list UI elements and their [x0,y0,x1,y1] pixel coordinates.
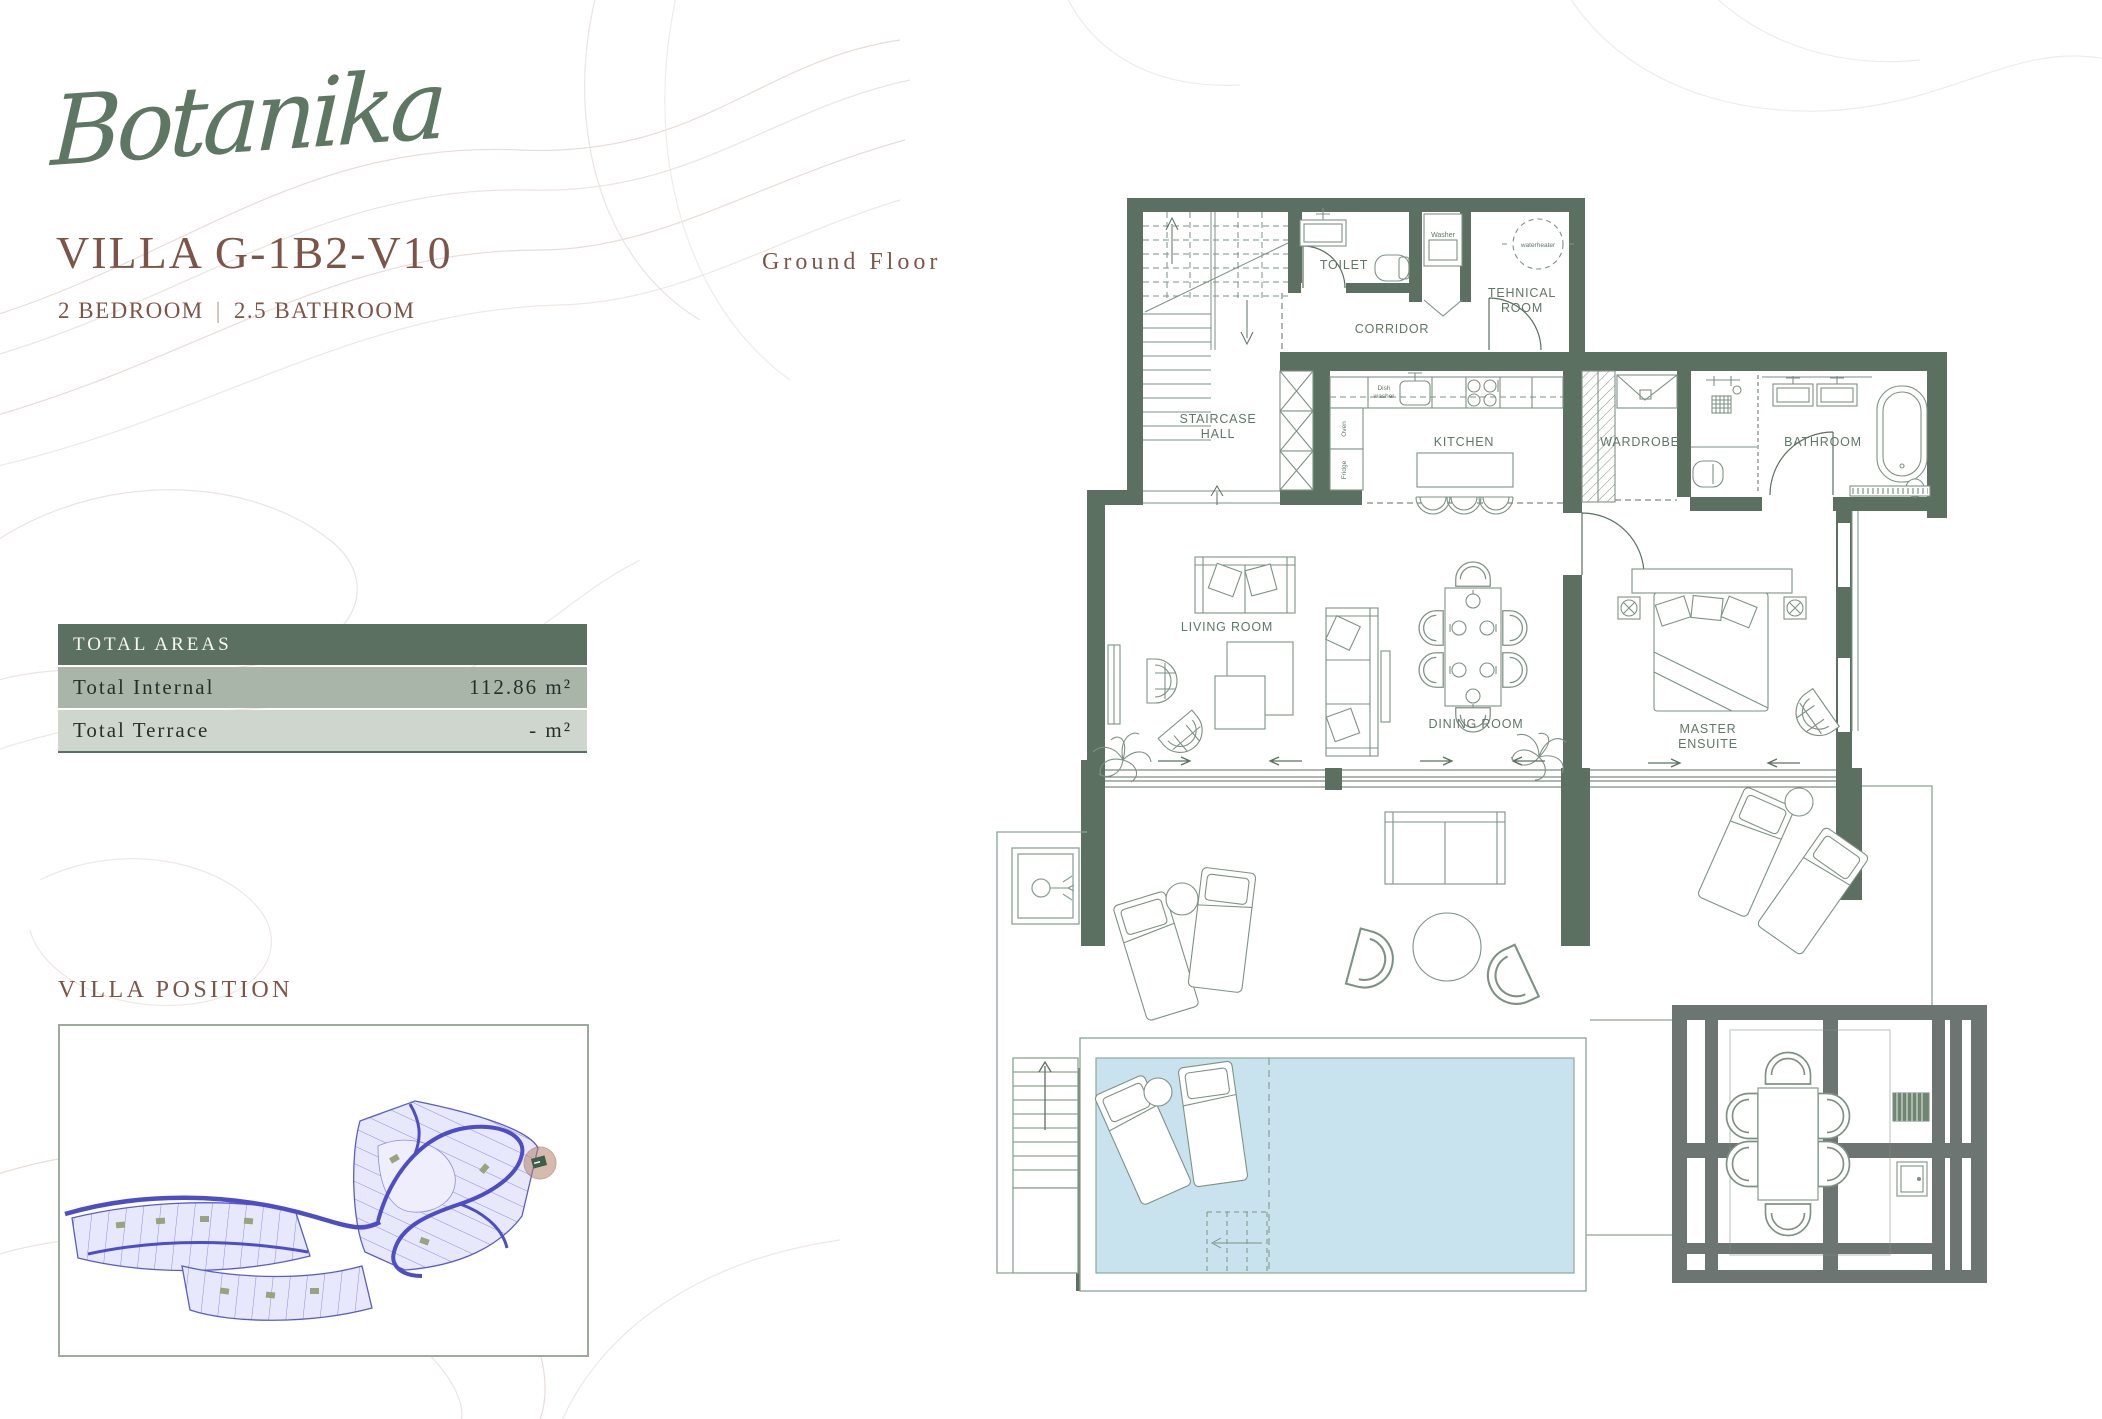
villa-position-marker [524,1147,556,1179]
area-label: Total Internal [73,667,214,708]
table-row: Total Terrace - m² [58,710,587,751]
room-label-toilet: TOILET [1320,258,1368,272]
page-title: VILLA G-1B2-V10 [56,226,453,279]
window-arrows [1158,757,1800,767]
pool [1080,1038,1586,1291]
technical-fixtures [1424,214,1574,316]
room-label-corridor: CORRIDOR [1355,322,1429,336]
room-label-staircase-hall-1: STAIRCASE [1179,412,1256,426]
room-label-kitchen: KITCHEN [1434,435,1494,449]
room-label-tehnical-2: ROOM [1501,301,1543,315]
bedrooms-text: 2 BEDROOM [58,298,204,323]
area-label: Total Terrace [73,710,209,751]
room-label-master-2: ENSUITE [1678,737,1738,751]
room-label-tehnical-1: TEHNICAL [1488,286,1556,300]
total-areas-table: TOTAL AREAS Total Internal 112.86 m² Tot… [58,624,587,753]
brand-logo-text: Botanika [48,49,444,189]
room-label-staircase-hall-2: HALL [1201,427,1235,441]
room-label-wardrobe: WARDROBE [1600,435,1680,449]
fixture-label-washer: Washer [1431,232,1456,239]
staircase [1143,212,1288,505]
area-value: - m² [529,710,572,751]
terrace-furniture [1113,786,1870,1021]
fixture-label-dishwasher-1: Dish [1377,385,1390,392]
fixture-label-dishwasher-2: washer [1373,393,1396,400]
master-ensuite-furniture [1618,569,1839,745]
fixture-label-fridge: Fridge [1341,460,1348,479]
table-row: Total Internal 112.86 m² [58,667,587,708]
shower-fixtures [1691,376,1757,487]
site-map [60,1026,587,1355]
villa-subtitle: 2 BEDROOM|2.5 BATHROOM [58,298,415,324]
villa-position-map [58,1024,589,1357]
room-label-living-room: LIVING ROOM [1181,620,1273,634]
pergola [1672,1005,1987,1283]
subtitle-separator: | [216,298,222,323]
total-areas-header: TOTAL AREAS [58,624,587,665]
kitchen-stools [1416,497,1513,514]
dining-room-furniture [1419,562,1527,732]
room-label-dining-room: DINING ROOM [1429,717,1524,731]
fixture-label-oven: Oven [1341,421,1348,437]
room-label-bathroom: BATHROOM [1784,435,1862,449]
area-value: 112.86 m² [469,667,572,708]
floor-label: Ground Floor [762,249,941,276]
brand-logo: Botanika [48,28,538,203]
bathrooms-text: 2.5 BATHROOM [234,298,416,323]
map-clusters [72,1101,538,1320]
fixture-label-waterheater: waterheater [1520,242,1556,249]
room-label-master-1: MASTER [1680,722,1737,736]
villa-position-heading: VILLA POSITION [58,977,293,1004]
